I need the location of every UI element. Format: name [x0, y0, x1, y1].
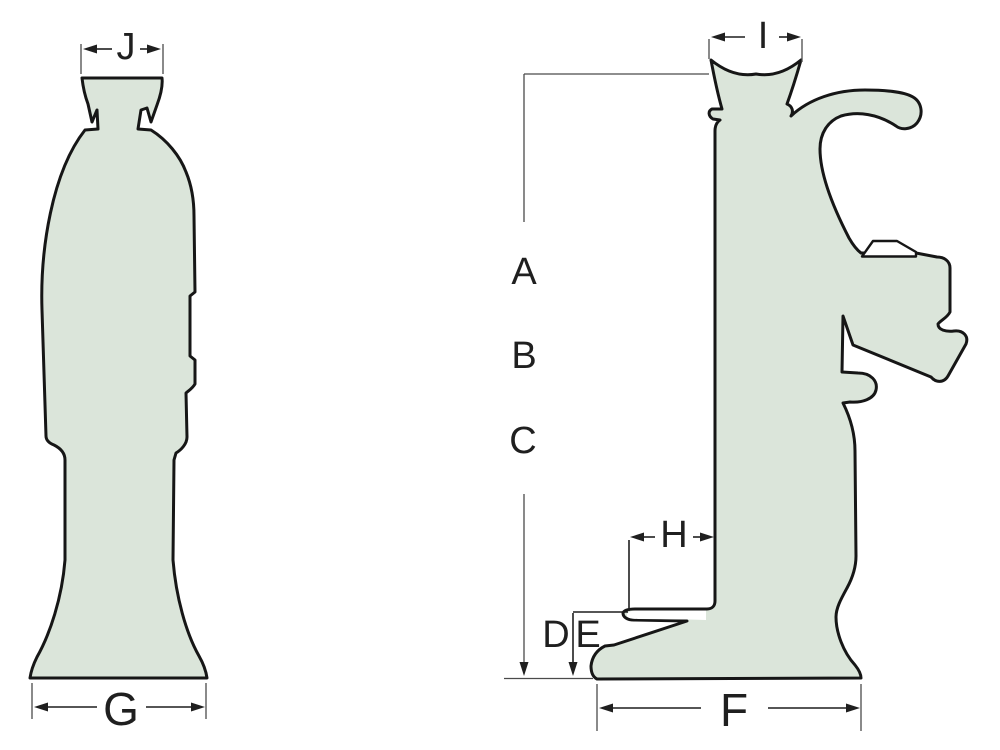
dim-label-a: A	[511, 251, 537, 293]
front-silhouette	[30, 78, 207, 678]
arrowhead-right	[191, 703, 205, 712]
arrowhead-left	[34, 703, 48, 712]
dim-label-c: C	[509, 420, 536, 462]
arrowhead-left	[599, 704, 613, 713]
side-silhouette	[591, 60, 967, 679]
front-view: J G	[30, 26, 207, 735]
pawl-boss-cutout	[862, 241, 916, 257]
dim-label-e: E	[575, 614, 600, 656]
dim-h: H	[629, 514, 714, 611]
arrowhead-right	[147, 45, 161, 54]
arrowhead-right	[846, 704, 860, 713]
toe-highlight	[627, 611, 706, 621]
dim-i: I	[709, 15, 802, 62]
diagram-canvas: J G I	[0, 0, 1000, 750]
side-view: I A B C D E H	[504, 15, 967, 736]
dim-g: G	[32, 683, 206, 735]
arrowhead-down	[569, 662, 578, 676]
jack-dimension-diagram: J G I	[0, 0, 1000, 750]
dim-f: F	[597, 684, 861, 736]
dim-label-h: H	[660, 514, 687, 556]
dim-label-j: J	[117, 26, 136, 68]
dim-j: J	[81, 26, 163, 74]
arrowhead-left	[711, 33, 725, 42]
dim-label-d: D	[542, 614, 569, 656]
dim-label-i: I	[758, 15, 769, 57]
dim-label-g: G	[103, 683, 139, 735]
arrowhead-right	[700, 533, 714, 542]
arrowhead-right	[787, 33, 801, 42]
arrowhead-down	[520, 662, 529, 676]
dim-label-b: B	[511, 335, 536, 377]
dim-label-f: F	[720, 684, 748, 736]
arrowhead-left	[83, 45, 97, 54]
dim-abc: A B C	[509, 74, 709, 676]
arrowhead-left	[630, 533, 644, 542]
